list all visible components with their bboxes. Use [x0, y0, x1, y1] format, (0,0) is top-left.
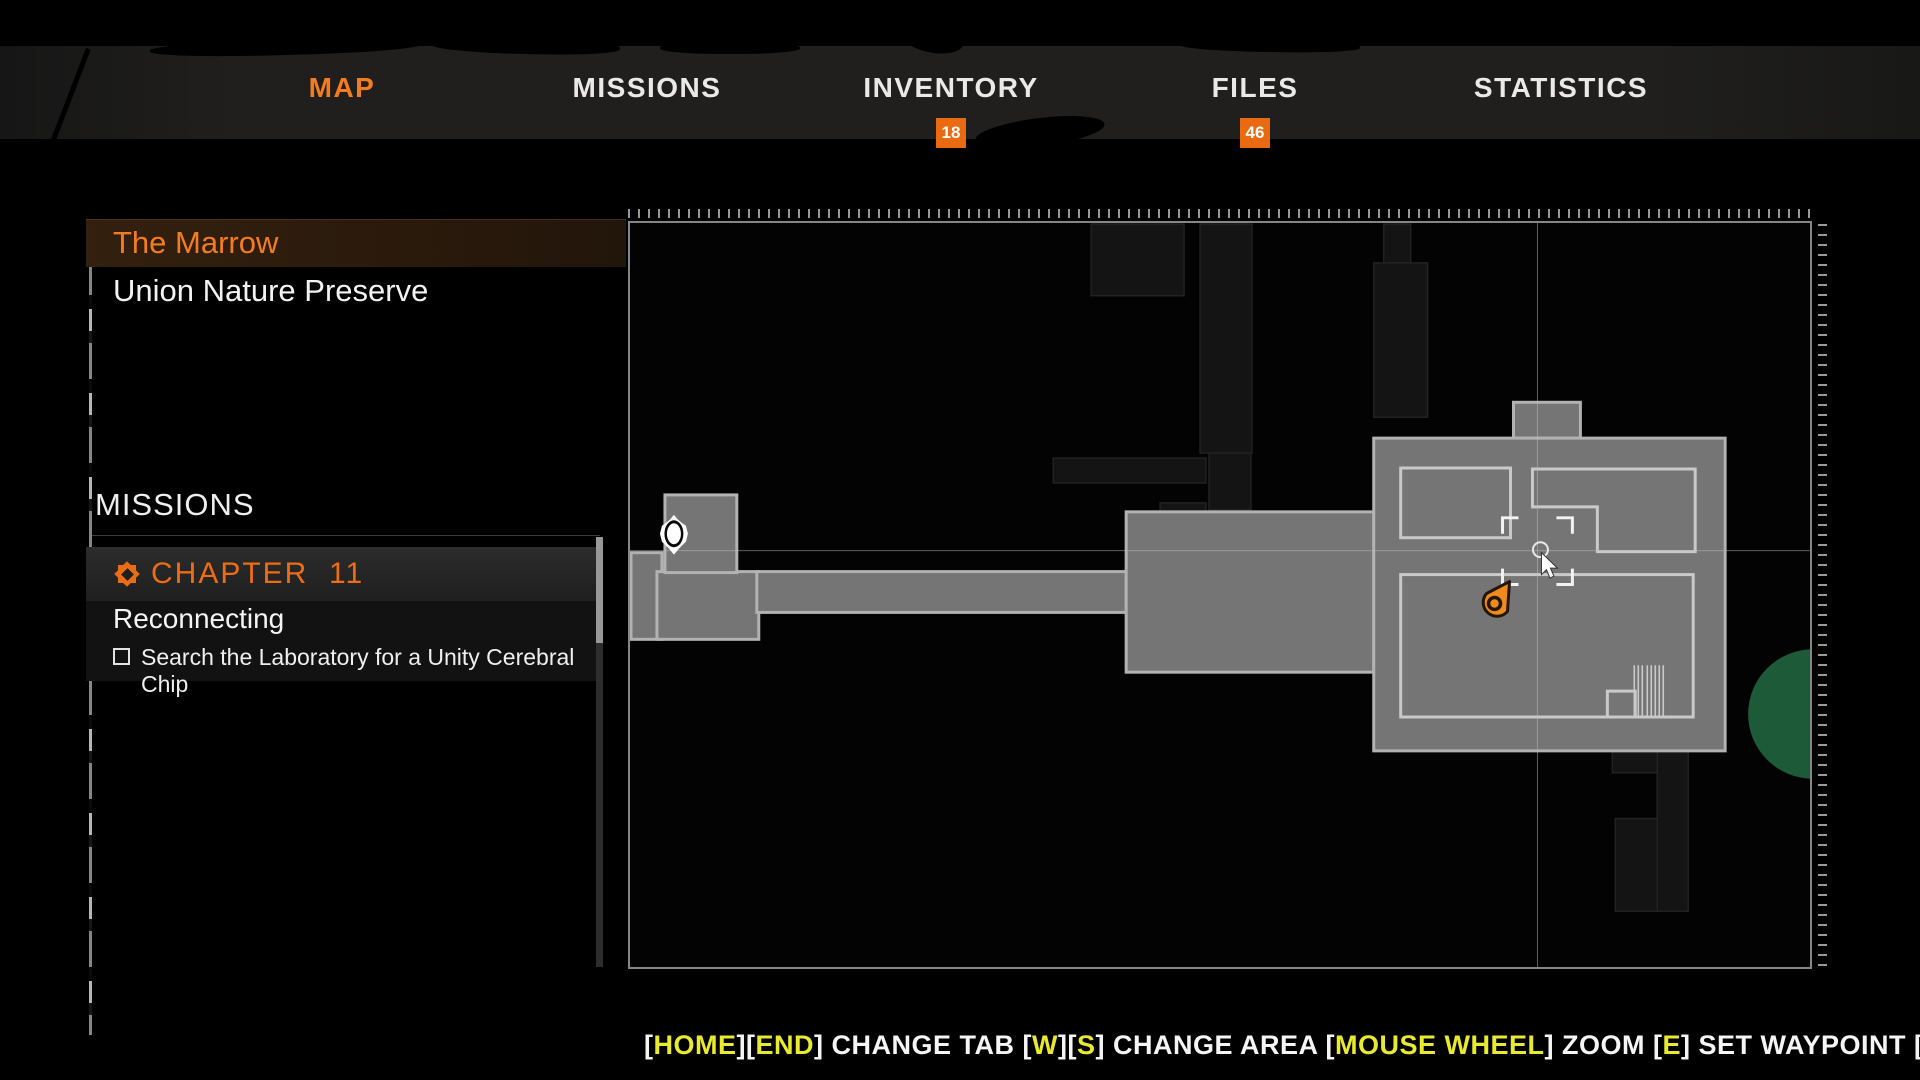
hint-key-e: E [1662, 1030, 1681, 1060]
chapter-star-icon [113, 560, 141, 588]
objective-checkbox[interactable] [113, 648, 130, 665]
missions-heading: MISSIONS [95, 487, 255, 523]
missions-scrollbar-track[interactable] [596, 537, 603, 967]
tab-files[interactable]: FILES [1212, 72, 1299, 104]
area-item-union-nature-preserve[interactable]: Union Nature Preserve [86, 267, 626, 315]
hint-key-home: HOME [654, 1030, 737, 1060]
hint-bracket: ][ [737, 1030, 756, 1060]
hint-bracket: [ [644, 1030, 654, 1060]
map-viewport[interactable] [628, 221, 1812, 969]
mission-title: Reconnecting [113, 603, 284, 635]
objective-row: Search the Laboratory for a Unity Cerebr… [113, 644, 600, 698]
area-label: The Marrow [113, 225, 278, 261]
game-screen: MAP MISSIONS INVENTORY FILES STATISTICS … [0, 0, 1920, 1080]
green-zone [1748, 649, 1810, 778]
hint-key-s: S [1077, 1030, 1096, 1060]
grunge-decoration [660, 42, 800, 54]
inventory-badge: 18 [936, 118, 966, 148]
mission-panel: Reconnecting Search the Laboratory for a… [86, 601, 600, 681]
tab-missions[interactable]: MISSIONS [573, 72, 722, 104]
controls-hint-bar: [HOME][END] CHANGE TAB [W][S] CHANGE ARE… [612, 999, 1920, 1080]
map-canvas [630, 223, 1810, 967]
map-ruler-right [1818, 224, 1827, 967]
missions-scrollbar-thumb[interactable] [596, 537, 603, 643]
hint-text-zoom: ] ZOOM [ [1545, 1030, 1663, 1060]
missions-panel-divider [92, 535, 600, 536]
tab-statistics[interactable]: STATISTICS [1474, 72, 1648, 104]
hint-text-set-waypoint: ] SET WAYPOINT [ [1681, 1030, 1920, 1060]
hint-text-change-tab: ] CHANGE TAB [ [814, 1030, 1032, 1060]
files-badge: 46 [1240, 118, 1270, 148]
hint-key-mouse-wheel: MOUSE WHEEL [1335, 1030, 1545, 1060]
tab-inventory[interactable]: INVENTORY [863, 72, 1038, 104]
map-ruler-top [628, 209, 1812, 218]
chapter-row[interactable]: CHAPTER 11 [86, 547, 600, 601]
area-label: Union Nature Preserve [113, 273, 428, 309]
hint-key-w: W [1032, 1030, 1058, 1060]
area-item-the-marrow[interactable]: The Marrow [86, 219, 626, 267]
hint-text-change-area: ] CHANGE AREA [ [1095, 1030, 1335, 1060]
tab-map[interactable]: MAP [309, 72, 376, 104]
objective-label: Search the Laboratory for a Unity Cerebr… [141, 644, 600, 698]
hint-bracket: ][ [1058, 1030, 1077, 1060]
map-rooms-group [631, 402, 1725, 751]
chapter-label: CHAPTER 11 [151, 557, 364, 591]
hint-key-end: END [756, 1030, 815, 1060]
